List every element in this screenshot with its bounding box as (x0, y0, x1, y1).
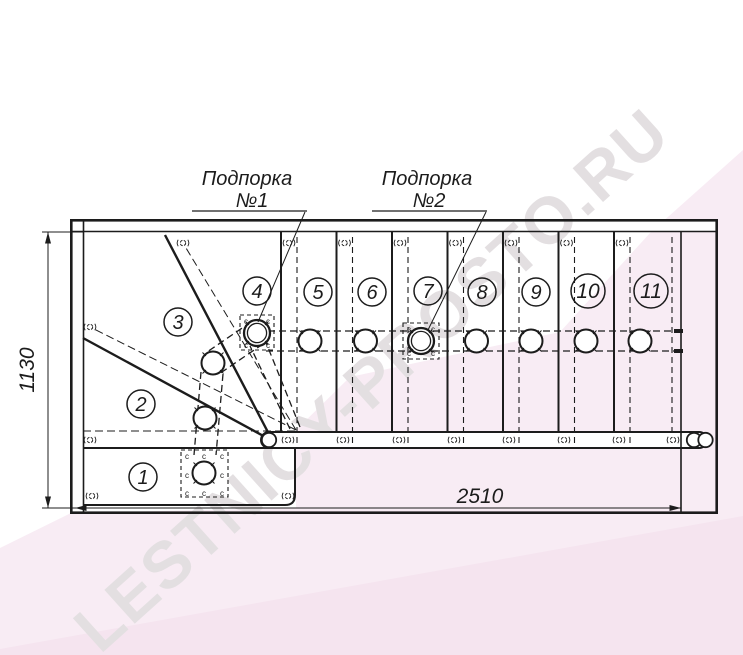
stair-plan-page: LESTNICY-PROSTO.RU c c c c c c (0, 0, 743, 655)
support2-number: №2 (413, 190, 446, 212)
c-mark: c (202, 489, 206, 498)
stair-plan-canvas: LESTNICY-PROSTO.RU c c c c c c (0, 0, 743, 655)
c-mark: c (220, 471, 224, 480)
support2-post (408, 328, 434, 354)
width-dimension-text: 2510 (456, 485, 504, 508)
support1-label: Подпорка (202, 168, 293, 190)
support2-label: Подпорка (382, 168, 473, 190)
stringer-bar (261, 432, 713, 448)
bar-right-cap (698, 433, 712, 447)
support1-post (244, 320, 270, 346)
step-number: 5 (312, 282, 324, 304)
baluster-post (465, 330, 488, 353)
baluster-post (354, 330, 377, 353)
c-mark: c (185, 489, 189, 498)
step-number: 6 (366, 282, 378, 304)
c-mark: c (220, 489, 224, 498)
step-number: 7 (422, 281, 434, 303)
step-number: 1 (137, 467, 148, 489)
support1-number: №1 (236, 190, 269, 212)
c-mark: c (185, 471, 189, 480)
step-number: 9 (530, 282, 541, 304)
baluster-post (193, 462, 216, 485)
c-mark: c (185, 452, 189, 461)
baluster-post (299, 330, 322, 353)
step-number: 3 (172, 312, 183, 334)
bar-left-cap (262, 433, 276, 447)
baluster-post (520, 330, 543, 353)
step-number: 10 (576, 280, 600, 303)
height-dimension-text: 1130 (16, 347, 39, 392)
step-number: 2 (134, 394, 146, 416)
baluster-post (202, 352, 225, 375)
baluster-post (575, 330, 598, 353)
step-number: 4 (251, 281, 262, 303)
c-mark: c (220, 452, 224, 461)
step-number: 11 (640, 280, 662, 303)
baluster-post (194, 407, 217, 430)
baluster-post (629, 330, 652, 353)
c-mark: c (202, 452, 206, 461)
step-number: 8 (476, 282, 487, 304)
